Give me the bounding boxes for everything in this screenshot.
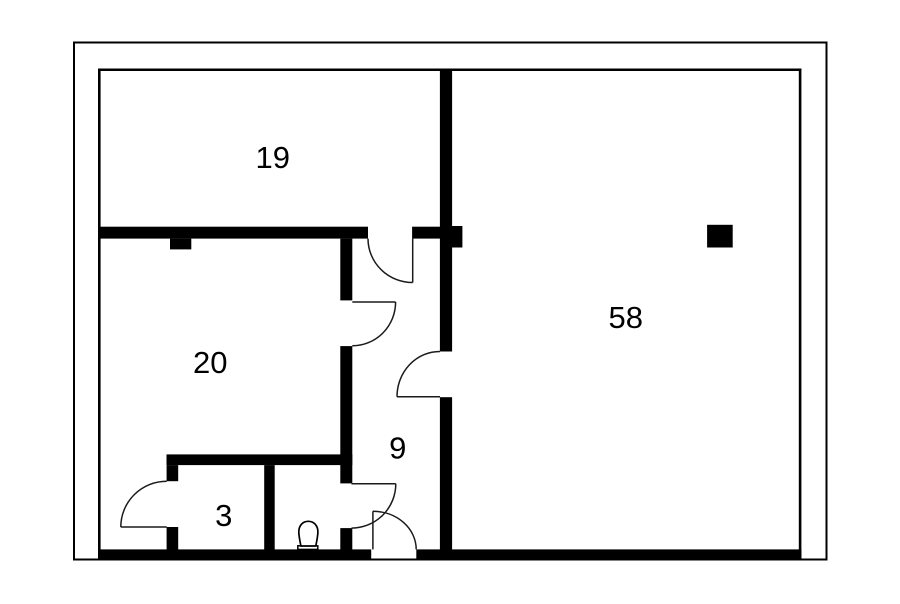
svg-text:19: 19 [255,140,289,175]
svg-text:3: 3 [215,498,232,533]
svg-text:9: 9 [389,430,406,465]
svg-text:20: 20 [193,345,227,380]
svg-text:58: 58 [609,300,643,335]
